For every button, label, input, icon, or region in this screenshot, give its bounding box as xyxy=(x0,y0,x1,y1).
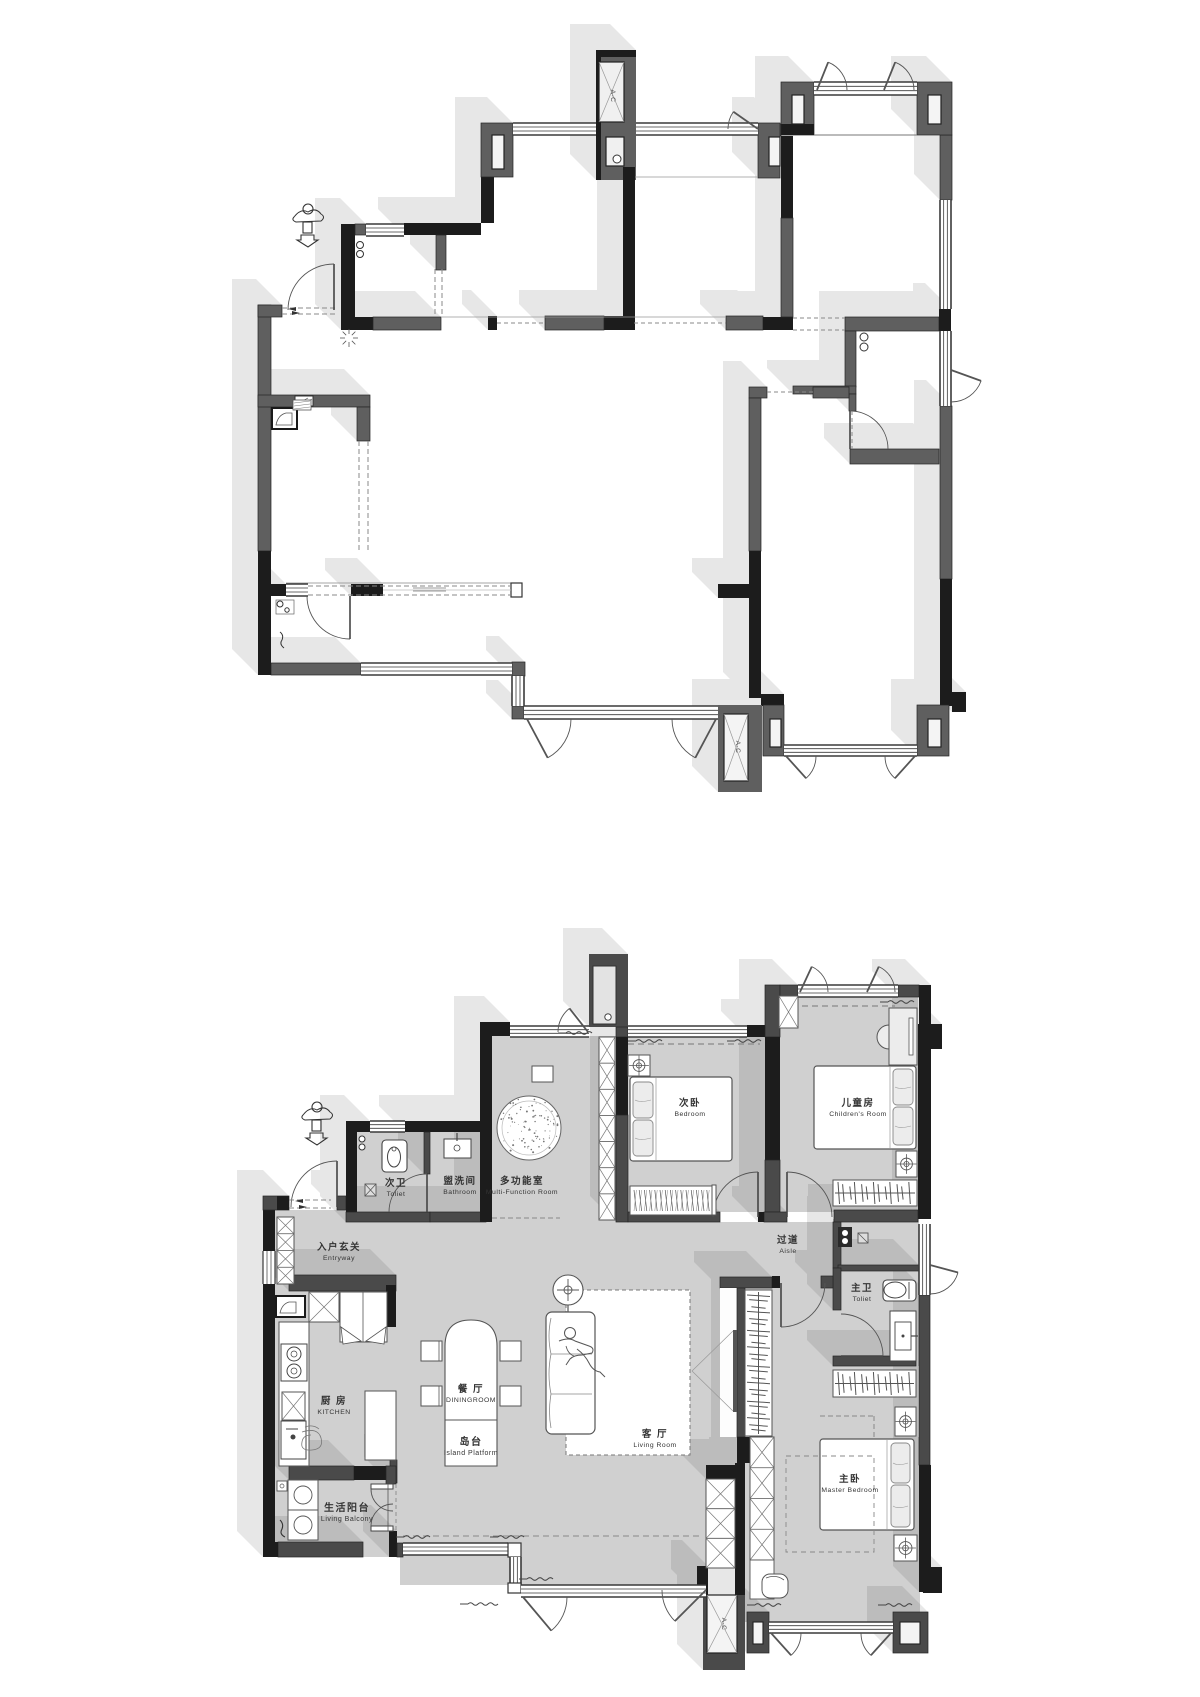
svg-text:A-C: A-C xyxy=(609,90,616,103)
svg-text:A-C: A-C xyxy=(720,1618,727,1631)
svg-text:Bathroom: Bathroom xyxy=(443,1189,476,1196)
svg-text:KITCHEN: KITCHEN xyxy=(317,1409,350,1416)
svg-text:餐 厅: 餐 厅 xyxy=(457,1383,484,1395)
svg-text:A-C: A-C xyxy=(734,741,741,754)
svg-text:Master Bedroom: Master Bedroom xyxy=(821,1487,878,1494)
svg-text:Living Balcony: Living Balcony xyxy=(321,1516,373,1523)
svg-text:Living Room: Living Room xyxy=(633,1442,676,1449)
svg-text:Aisle: Aisle xyxy=(779,1248,796,1255)
svg-text:多功能室: 多功能室 xyxy=(500,1175,544,1187)
svg-text:岛台: 岛台 xyxy=(460,1435,483,1448)
svg-text:Bedroom: Bedroom xyxy=(674,1111,705,1118)
svg-text:次卧: 次卧 xyxy=(679,1097,701,1109)
svg-text:儿童房: 儿童房 xyxy=(840,1097,874,1109)
svg-text:盥洗间: 盥洗间 xyxy=(443,1175,476,1187)
svg-text:主卧: 主卧 xyxy=(839,1473,861,1485)
svg-text:主卫: 主卫 xyxy=(851,1282,873,1294)
svg-text:生活阳台: 生活阳台 xyxy=(324,1501,370,1514)
svg-text:DININGROOM: DININGROOM xyxy=(446,1397,496,1404)
svg-text:客 厅: 客 厅 xyxy=(641,1428,668,1440)
svg-text:Toliet: Toliet xyxy=(387,1191,406,1198)
svg-text:Children's Room: Children's Room xyxy=(829,1111,887,1118)
svg-text:厨 房: 厨 房 xyxy=(321,1395,347,1407)
svg-text:Toliet: Toliet xyxy=(853,1296,872,1303)
svg-text:次卫: 次卫 xyxy=(385,1177,407,1189)
svg-text:过道: 过道 xyxy=(777,1234,799,1246)
svg-text:Island Platform: Island Platform xyxy=(444,1450,498,1457)
svg-text:Multi-Function Room: Multi-Function Room xyxy=(486,1189,558,1196)
svg-text:Entryway: Entryway xyxy=(323,1255,355,1262)
svg-text:入户玄关: 入户玄关 xyxy=(316,1241,361,1253)
